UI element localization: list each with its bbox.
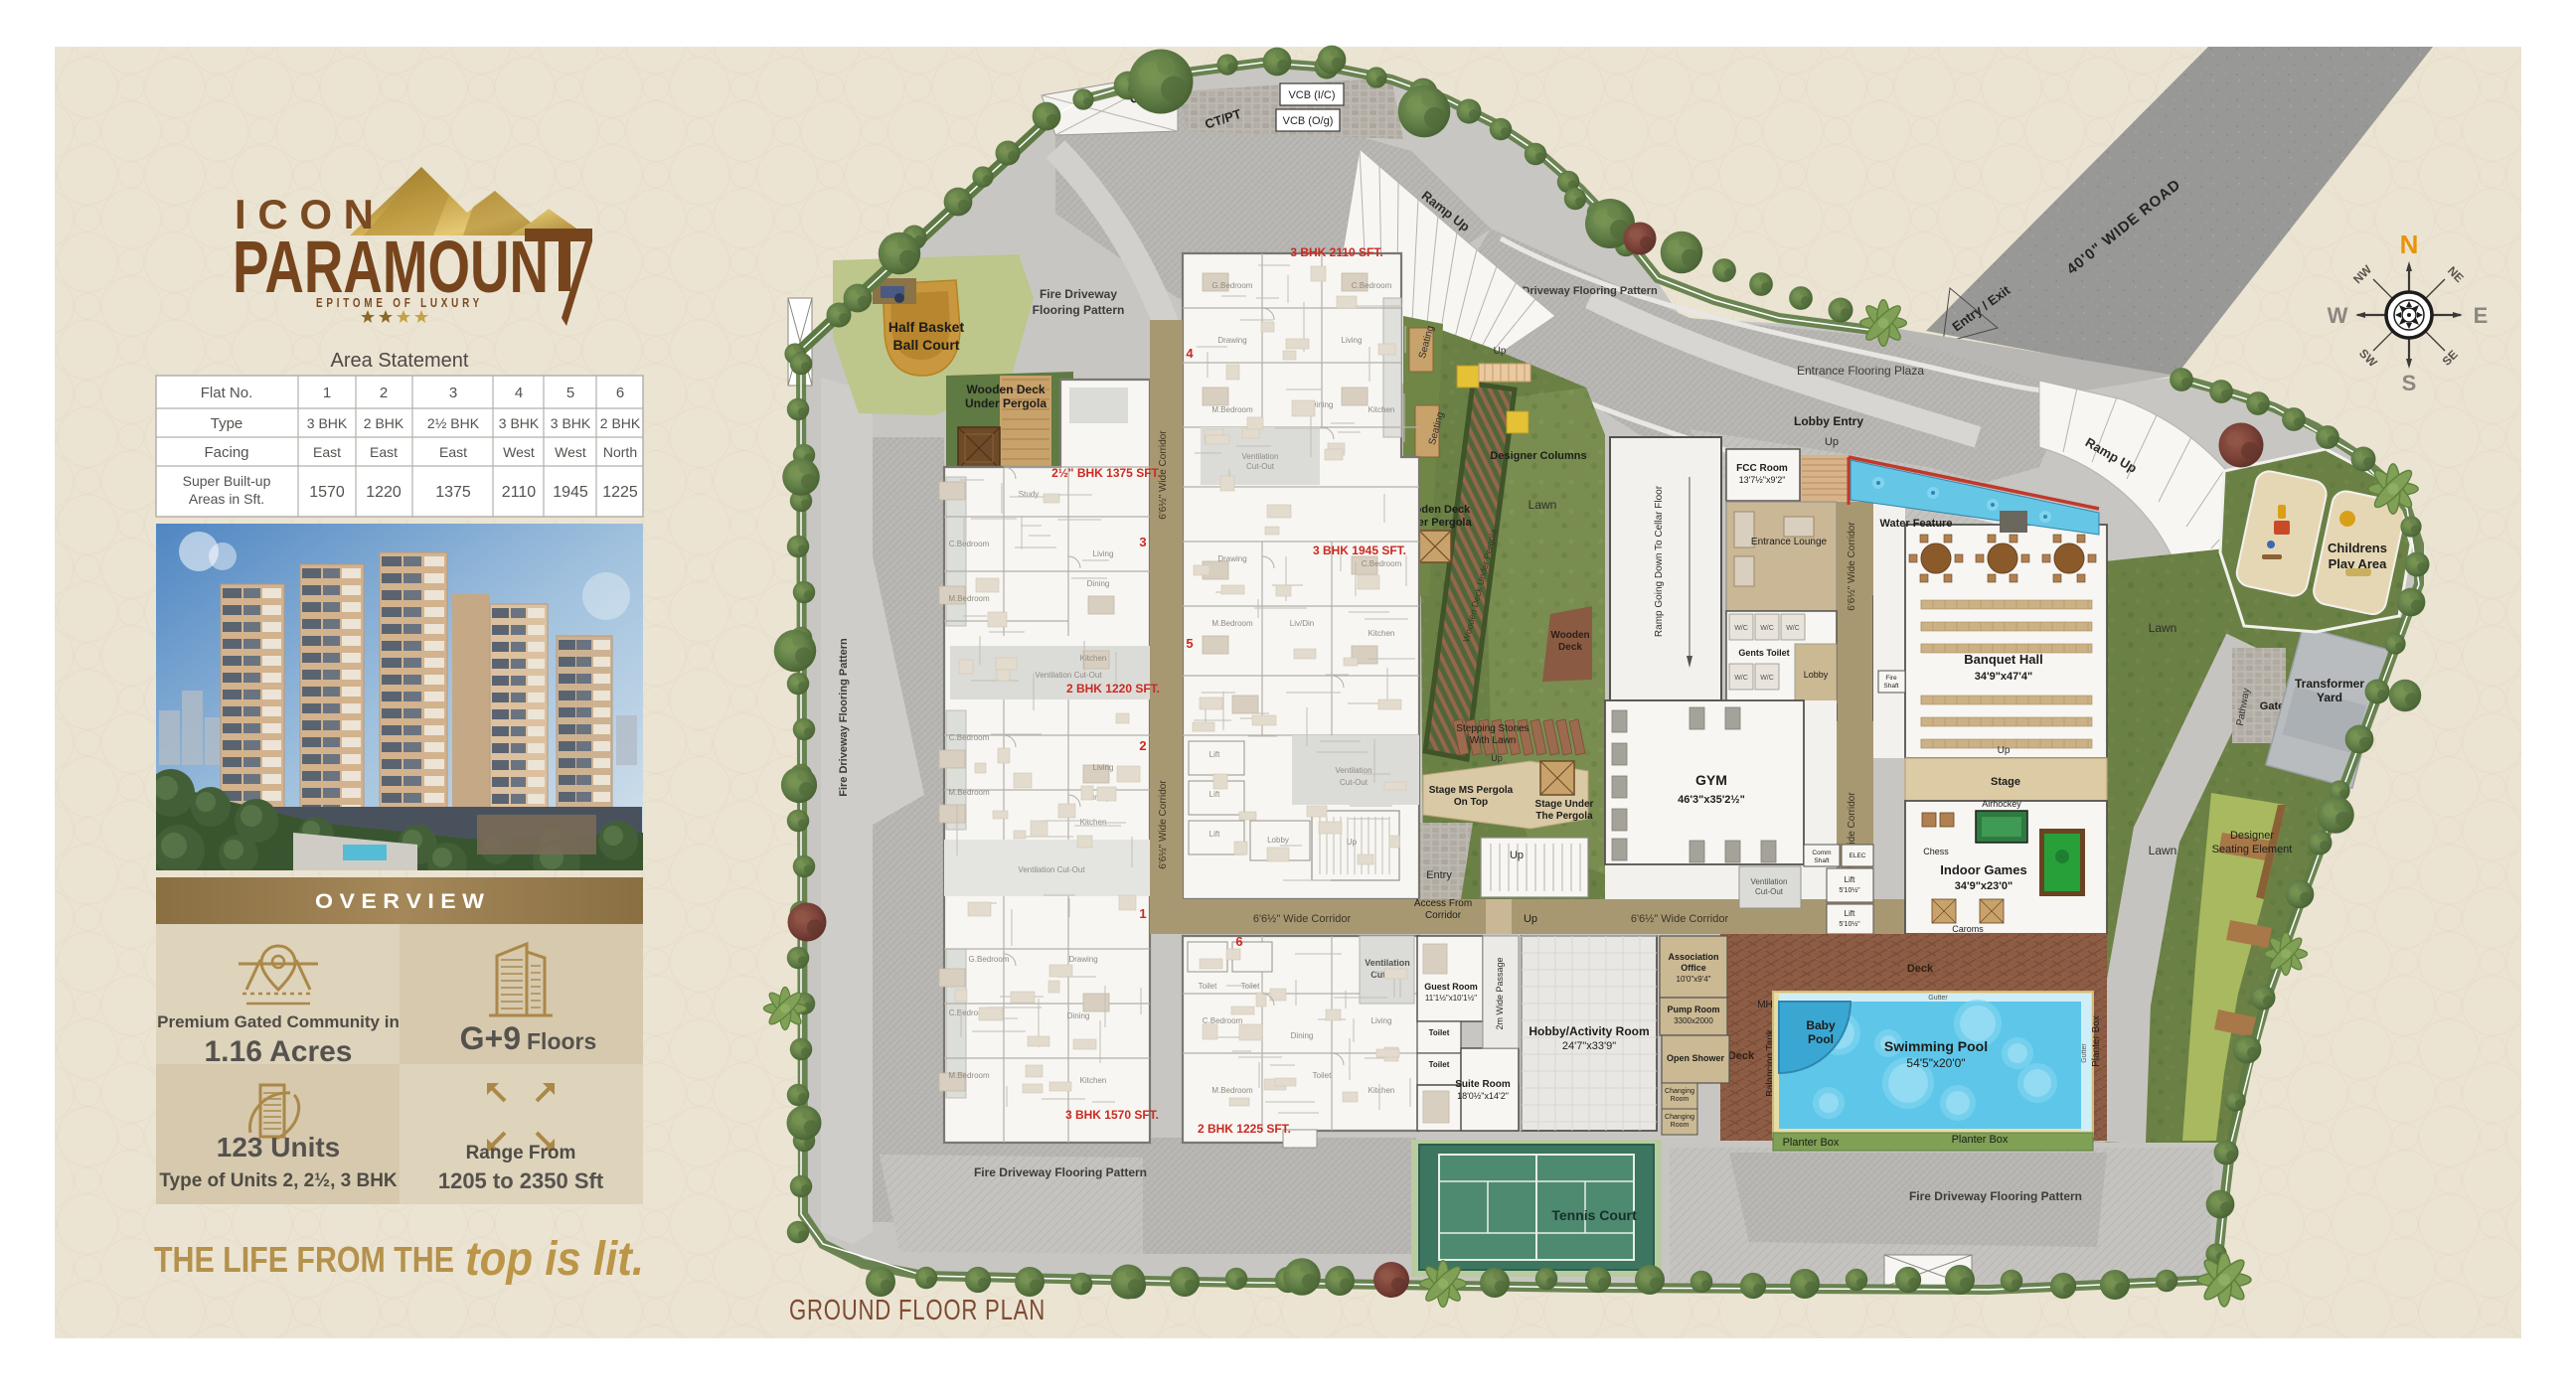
svg-text:4: 4 <box>515 385 523 401</box>
svg-text:With Lawn: With Lawn <box>1470 735 1517 746</box>
svg-text:2110: 2110 <box>502 484 537 501</box>
svg-text:Area Statement: Area Statement <box>331 350 469 372</box>
svg-text:Cut-Out: Cut-Out <box>1246 462 1275 471</box>
svg-text:Room: Room <box>1671 1096 1690 1103</box>
svg-text:46'3"x35'2½": 46'3"x35'2½" <box>1678 794 1745 806</box>
svg-text:3 BHK: 3 BHK <box>307 415 348 431</box>
svg-text:2 BHK: 2 BHK <box>600 415 641 431</box>
svg-text:10'0"x9'4": 10'0"x9'4" <box>1677 975 1711 984</box>
svg-text:Lift: Lift <box>1209 830 1220 839</box>
svg-text:Lobby: Lobby <box>1804 670 1829 680</box>
svg-text:Deck: Deck <box>1558 642 1582 653</box>
svg-text:Yard: Yard <box>2317 691 2342 704</box>
svg-text:2m Wide Passage: 2m Wide Passage <box>1495 957 1505 1029</box>
svg-text:Ventilation Cut-Out: Ventilation Cut-Out <box>1035 671 1102 680</box>
svg-text:18'0½"x14'2": 18'0½"x14'2" <box>1457 1091 1509 1101</box>
svg-text:Designer Columns: Designer Columns <box>1490 450 1586 462</box>
svg-text:Gutter: Gutter <box>1928 995 1948 1002</box>
svg-text:Areas in Sft.: Areas in Sft. <box>189 491 264 507</box>
svg-text:1225: 1225 <box>602 484 638 501</box>
svg-text:Fire Driveway Flooring Pattern: Fire Driveway Flooring Pattern <box>1909 1189 2082 1203</box>
svg-text:5'10½": 5'10½" <box>1839 920 1860 928</box>
svg-text:Dining: Dining <box>1067 1011 1090 1020</box>
svg-text:Comm: Comm <box>1812 850 1831 856</box>
svg-text:Drawing: Drawing <box>1217 336 1246 345</box>
svg-text:34'9"x23'0": 34'9"x23'0" <box>1955 880 2013 892</box>
svg-text:Gutter: Gutter <box>2081 1043 2088 1063</box>
svg-text:O V E R V I E W: O V E R V I E W <box>315 890 484 913</box>
svg-text:3: 3 <box>1139 535 1146 549</box>
svg-text:Entrance Lounge: Entrance Lounge <box>1751 537 1828 547</box>
svg-text:Guest Room: Guest Room <box>1424 982 1478 992</box>
svg-text:Transformer: Transformer <box>2295 677 2364 691</box>
svg-text:6: 6 <box>616 385 624 401</box>
svg-text:123 Units: 123 Units <box>217 1132 341 1162</box>
svg-text:G+9: G+9 <box>460 1020 521 1056</box>
svg-text:3 BHK 2110 SFT.: 3 BHK 2110 SFT. <box>1290 245 1382 259</box>
svg-text:Ramp Going Down To Cellar Floo: Ramp Going Down To Cellar Floor <box>1654 485 1665 637</box>
svg-text:Chess: Chess <box>1923 847 1949 856</box>
svg-text:2: 2 <box>1139 738 1146 753</box>
svg-text:M.Bedroom: M.Bedroom <box>1211 1086 1253 1095</box>
svg-text:M.Bedroom: M.Bedroom <box>1211 405 1253 414</box>
svg-text:Kitchen: Kitchen <box>1080 1076 1107 1085</box>
svg-text:4: 4 <box>1186 346 1194 361</box>
svg-text:Floors: Floors <box>527 1028 596 1054</box>
svg-text:Flooring Pattern: Flooring Pattern <box>1033 303 1125 317</box>
svg-text:Planter Box: Planter Box <box>1952 1134 2009 1146</box>
svg-text:FCC Room: FCC Room <box>1736 463 1788 474</box>
svg-text:Lawn: Lawn <box>1529 498 1557 512</box>
svg-text:Fire Driveway Flooring Pattern: Fire Driveway Flooring Pattern <box>974 1165 1147 1179</box>
svg-text:Access From: Access From <box>1414 898 1472 909</box>
svg-text:The Pergola: The Pergola <box>1535 811 1593 822</box>
svg-text:2: 2 <box>380 385 388 401</box>
svg-text:Lift: Lift <box>1209 790 1220 799</box>
svg-text:1570: 1570 <box>309 484 345 501</box>
svg-text:W/C: W/C <box>1734 675 1748 682</box>
svg-text:Type of Units 2, 2½, 3 BHK: Type of Units 2, 2½, 3 BHK <box>159 1170 398 1191</box>
svg-text:Drawing: Drawing <box>1217 554 1246 563</box>
svg-text:1220: 1220 <box>366 484 402 501</box>
svg-text:Banquet Hall: Banquet Hall <box>1964 652 2042 667</box>
svg-text:Indoor Games: Indoor Games <box>1940 862 2026 877</box>
svg-text:Planter Box: Planter Box <box>1783 1137 1840 1149</box>
svg-text:G.Bedroom: G.Bedroom <box>969 955 1010 964</box>
svg-text:Lift: Lift <box>1209 750 1220 759</box>
svg-text:Ball Court: Ball Court <box>893 337 960 353</box>
svg-text:East: East <box>439 444 467 460</box>
svg-text:Ventilation: Ventilation <box>1242 452 1279 461</box>
svg-text:N: N <box>2400 230 2419 259</box>
svg-text:GROUND FLOOR PLAN: GROUND FLOOR PLAN <box>789 1295 1046 1326</box>
svg-text:S: S <box>2402 371 2417 395</box>
svg-text:Lift: Lift <box>1845 875 1855 884</box>
svg-text:Tennis Court: Tennis Court <box>1551 1207 1637 1223</box>
svg-text:Wooden: Wooden <box>1550 630 1589 641</box>
svg-text:Wooden Deck: Wooden Deck <box>966 383 1045 396</box>
svg-text:ELEC: ELEC <box>1850 852 1866 859</box>
svg-text:Open Shower: Open Shower <box>1667 1053 1725 1063</box>
svg-text:Under Pergola: Under Pergola <box>965 396 1046 410</box>
svg-text:Kitchen: Kitchen <box>1368 629 1395 638</box>
svg-text:Room: Room <box>1671 1122 1690 1129</box>
svg-text:Water Feature: Water Feature <box>1880 518 1953 530</box>
svg-text:East: East <box>370 444 398 460</box>
svg-text:Drawing: Drawing <box>1068 955 1097 964</box>
svg-text:C.Bedroom: C.Bedroom <box>1362 559 1402 568</box>
svg-text:Suite Room: Suite Room <box>1455 1079 1511 1090</box>
svg-text:Office: Office <box>1681 963 1706 973</box>
svg-text:Stage MS Pergola: Stage MS Pergola <box>1429 785 1514 796</box>
svg-text:Living: Living <box>1093 549 1114 558</box>
svg-text:Childrens: Childrens <box>2328 541 2387 555</box>
svg-text:Airhockey: Airhockey <box>1982 799 2021 809</box>
svg-text:Seating Element: Seating Element <box>2212 844 2293 855</box>
svg-text:Fire Driveway: Fire Driveway <box>1040 287 1117 301</box>
svg-text:Ventilation Cut-Out: Ventilation Cut-Out <box>1018 865 1085 874</box>
svg-text:West: West <box>503 444 535 460</box>
svg-text:6'6½" Wide Corridor: 6'6½" Wide Corridor <box>1631 913 1729 925</box>
svg-text:Cut-Out: Cut-Out <box>1340 778 1368 787</box>
svg-text:Kitchen: Kitchen <box>1368 1086 1395 1095</box>
svg-text:Toilet: Toilet <box>1429 1028 1450 1037</box>
svg-text:Ventilation: Ventilation <box>1751 877 1788 886</box>
svg-text:West: West <box>555 444 586 460</box>
svg-text:GYM: GYM <box>1695 772 1727 788</box>
svg-text:C.Bedroom: C.Bedroom <box>1352 281 1392 290</box>
svg-text:Pool: Pool <box>1808 1032 1834 1046</box>
svg-text:1375: 1375 <box>435 484 471 501</box>
svg-text:W/C: W/C <box>1760 675 1774 682</box>
svg-text:6'6½" Wide Corridor: 6'6½" Wide Corridor <box>1847 522 1857 611</box>
svg-text:Designer: Designer <box>2230 830 2274 842</box>
svg-text:E: E <box>2474 303 2489 328</box>
svg-text:Up: Up <box>1494 346 1507 357</box>
svg-text:Lawn: Lawn <box>2149 621 2177 635</box>
svg-text:MH: MH <box>1757 1000 1773 1010</box>
svg-text:Up: Up <box>1998 745 2011 756</box>
svg-text:Deck: Deck <box>1728 1050 1755 1062</box>
svg-text:Type: Type <box>211 415 243 432</box>
svg-text:On Top: On Top <box>1454 797 1488 808</box>
svg-text:Dining: Dining <box>1087 579 1110 588</box>
svg-text:Shaft: Shaft <box>1814 857 1829 864</box>
svg-text:M.Bedroom: M.Bedroom <box>948 788 990 797</box>
svg-text:East: East <box>313 444 341 460</box>
svg-text:24'7"x33'9": 24'7"x33'9" <box>1562 1040 1616 1052</box>
svg-text:Lobby Entry: Lobby Entry <box>1794 414 1863 428</box>
svg-text:5'10½": 5'10½" <box>1839 886 1860 894</box>
svg-text:1.16 Acres: 1.16 Acres <box>204 1035 352 1068</box>
svg-text:34'9"x47'4": 34'9"x47'4" <box>1975 671 2033 683</box>
svg-text:Deck: Deck <box>1907 963 1934 975</box>
svg-text:Toilet: Toilet <box>1429 1060 1450 1069</box>
svg-text:VCB (O/g): VCB (O/g) <box>1283 115 1334 127</box>
svg-text:3 BHK 1570 SFT.: 3 BHK 1570 SFT. <box>1065 1108 1159 1122</box>
svg-text:Dining: Dining <box>1291 1031 1314 1040</box>
svg-text:Changing: Changing <box>1665 1088 1694 1095</box>
svg-text:Ventilation: Ventilation <box>1365 958 1410 968</box>
svg-text:Up: Up <box>1524 913 1537 925</box>
svg-text:Stepping Stones: Stepping Stones <box>1456 723 1529 734</box>
svg-text:Up: Up <box>1347 838 1358 847</box>
svg-text:2 BHK 1225 SFT.: 2 BHK 1225 SFT. <box>1198 1122 1291 1136</box>
svg-text:Gents Toilet: Gents Toilet <box>1738 648 1789 658</box>
svg-text:11'1½"x10'1½": 11'1½"x10'1½" <box>1425 994 1477 1003</box>
svg-text:3 BHK 1945 SFT.: 3 BHK 1945 SFT. <box>1313 543 1406 557</box>
svg-text:Up: Up <box>1491 753 1503 763</box>
svg-text:Premium Gated Community in: Premium Gated Community in <box>157 1012 400 1031</box>
svg-text:Flat No.: Flat No. <box>201 385 253 401</box>
svg-text:3300x2000: 3300x2000 <box>1674 1016 1713 1025</box>
svg-text:1205 to 2350 Sft: 1205 to 2350 Sft <box>438 1168 604 1193</box>
svg-text:5: 5 <box>1186 636 1193 651</box>
svg-text:W/C: W/C <box>1760 625 1774 632</box>
svg-text:Fire Driveway Flooring Pattern: Fire Driveway Flooring Pattern <box>838 638 850 797</box>
svg-text:Entrance Flooring Plaza: Entrance Flooring Plaza <box>1797 364 1924 378</box>
svg-text:Range From: Range From <box>466 1143 576 1163</box>
svg-text:6: 6 <box>1235 934 1242 949</box>
svg-text:G.Bedroom: G.Bedroom <box>1212 281 1253 290</box>
svg-text:Planter Box: Planter Box <box>2091 1015 2102 1067</box>
svg-text:Swimming Pool: Swimming Pool <box>1884 1038 1988 1054</box>
svg-text:Fire: Fire <box>1885 675 1897 682</box>
svg-text:Hobby/Activity Room: Hobby/Activity Room <box>1529 1024 1649 1038</box>
svg-text:Lawn: Lawn <box>2149 844 2177 857</box>
svg-text:Up: Up <box>1825 436 1839 448</box>
svg-text:top is lit.: top is lit. <box>465 1233 644 1286</box>
svg-text:Up: Up <box>1510 850 1524 861</box>
svg-text:1: 1 <box>323 385 331 401</box>
svg-text:Lobby: Lobby <box>1267 836 1289 845</box>
svg-text:Lift: Lift <box>1845 909 1855 918</box>
svg-text:6'6½" Wide Corridor: 6'6½" Wide Corridor <box>1847 792 1857 881</box>
svg-text:Stage: Stage <box>1991 776 2020 788</box>
svg-text:2½ BHK: 2½ BHK <box>427 415 480 431</box>
svg-text:Corridor: Corridor <box>1425 910 1462 921</box>
svg-text:2 BHK 1220 SFT.: 2 BHK 1220 SFT. <box>1066 682 1160 696</box>
svg-text:M.Bedroom: M.Bedroom <box>948 594 990 603</box>
svg-text:M.Bedroom: M.Bedroom <box>948 1071 990 1080</box>
svg-text:1: 1 <box>1139 906 1146 921</box>
svg-text:Living: Living <box>1342 336 1363 345</box>
svg-text:Caroms: Caroms <box>1952 924 1984 934</box>
svg-text:Association: Association <box>1668 952 1718 962</box>
svg-text:Pump Room: Pump Room <box>1668 1005 1720 1014</box>
svg-text:W/C: W/C <box>1786 625 1800 632</box>
svg-text:Shaft: Shaft <box>1883 683 1898 690</box>
svg-text:2 BHK: 2 BHK <box>364 415 404 431</box>
svg-text:THE LIFE FROM THE: THE LIFE FROM THE <box>154 1239 454 1280</box>
svg-text:Toilet: Toilet <box>1313 1071 1332 1080</box>
svg-text:54'5"x20'0": 54'5"x20'0" <box>1906 1056 1965 1070</box>
svg-text:W: W <box>2328 303 2348 328</box>
svg-text:Facing: Facing <box>204 444 248 461</box>
svg-text:Living: Living <box>1093 763 1114 772</box>
svg-text:C.Bedroom: C.Bedroom <box>949 540 990 548</box>
svg-text:Half Basket: Half Basket <box>888 319 965 335</box>
svg-text:Super Built-up: Super Built-up <box>183 473 271 489</box>
svg-text:M.Bedroom: M.Bedroom <box>1211 619 1253 628</box>
svg-text:6'6½" Wide Corridor: 6'6½" Wide Corridor <box>1158 780 1169 869</box>
svg-text:1945: 1945 <box>553 484 588 501</box>
svg-text:5: 5 <box>566 385 574 401</box>
svg-text:Cut-Out: Cut-Out <box>1755 887 1784 896</box>
svg-text:3 BHK: 3 BHK <box>551 415 591 431</box>
svg-text:Entry: Entry <box>1426 869 1452 881</box>
svg-text:W/C: W/C <box>1734 625 1748 632</box>
svg-text:Changing: Changing <box>1665 1114 1694 1121</box>
svg-text:6'6½" Wide Corridor: 6'6½" Wide Corridor <box>1253 913 1352 925</box>
svg-text:VCB (I/C): VCB (I/C) <box>1288 89 1335 101</box>
svg-text:C.Bedroom: C.Bedroom <box>1203 1016 1243 1025</box>
svg-text:Baby: Baby <box>1806 1018 1836 1032</box>
svg-text:3 BHK: 3 BHK <box>499 415 540 431</box>
svg-text:Kitchen: Kitchen <box>1368 405 1395 414</box>
svg-text:Living: Living <box>1371 1016 1392 1025</box>
svg-text:EPITOME OF LUXURY: EPITOME OF LUXURY <box>316 295 483 310</box>
svg-text:Toilet: Toilet <box>1199 982 1217 991</box>
svg-text:North: North <box>603 444 637 460</box>
svg-text:Stage Under: Stage Under <box>1535 799 1594 810</box>
svg-text:13'7½"x9'2": 13'7½"x9'2" <box>1739 475 1786 485</box>
svg-text:Liv/Din: Liv/Din <box>1290 619 1314 628</box>
svg-text:3: 3 <box>449 385 457 401</box>
svg-text:C.Bedroom: C.Bedroom <box>949 733 990 742</box>
svg-text:Study: Study <box>1019 490 1039 499</box>
svg-text:2½" BHK 1375 SFT.: 2½" BHK 1375 SFT. <box>1051 466 1161 480</box>
